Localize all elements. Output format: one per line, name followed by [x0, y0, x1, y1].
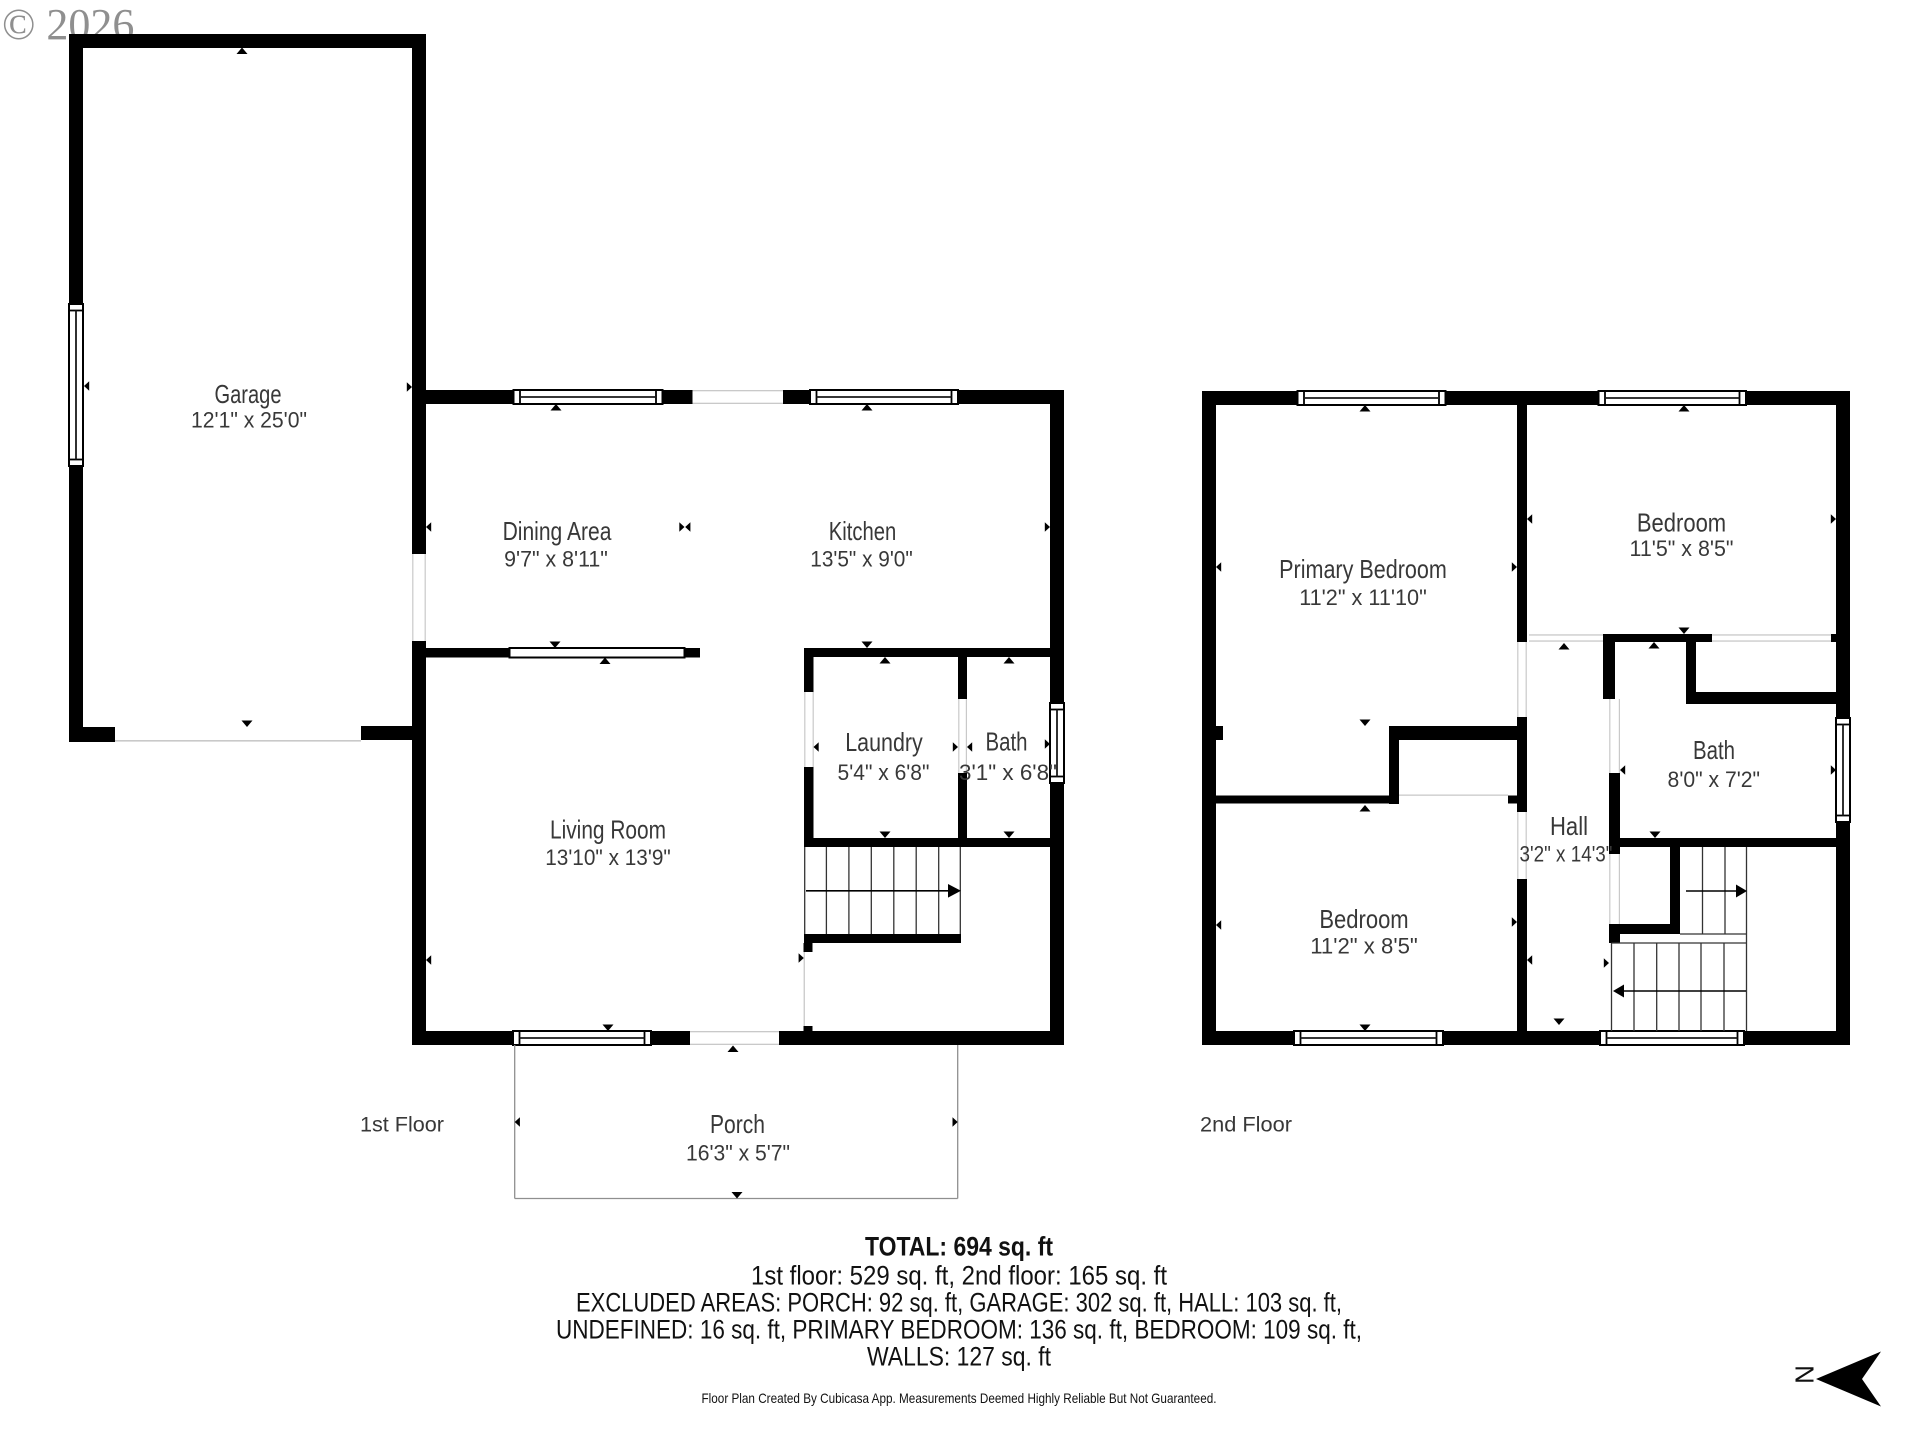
svg-text:Bedroom: Bedroom [1319, 904, 1408, 934]
svg-text:TOTAL: 694 sq. ft: TOTAL: 694 sq. ft [865, 1232, 1053, 1262]
svg-text:Primary Bedroom: Primary Bedroom [1279, 554, 1447, 584]
svg-text:Bath: Bath [1693, 735, 1735, 765]
svg-text:1st Floor: 1st Floor [360, 1114, 444, 1137]
svg-text:Porch: Porch [710, 1109, 765, 1139]
svg-text:UNDEFINED: 16 sq. ft, PRIMARY: UNDEFINED: 16 sq. ft, PRIMARY BEDROOM: 1… [556, 1315, 1362, 1345]
svg-text:1st floor: 529 sq. ft, 2nd flo: 1st floor: 529 sq. ft, 2nd floor: 165 sq… [751, 1261, 1167, 1291]
svg-text:Kitchen: Kitchen [829, 516, 897, 546]
svg-text:11'2" x 11'10": 11'2" x 11'10" [1299, 585, 1427, 610]
svg-text:EXCLUDED AREAS: PORCH: 92 sq.: EXCLUDED AREAS: PORCH: 92 sq. ft, GARAGE… [576, 1288, 1342, 1318]
svg-text:WALLS: 127 sq. ft: WALLS: 127 sq. ft [867, 1342, 1051, 1372]
svg-text:Bedroom: Bedroom [1637, 508, 1726, 538]
svg-text:3'1" x 6'8": 3'1" x 6'8" [959, 760, 1057, 785]
svg-text:Laundry: Laundry [845, 727, 923, 757]
svg-text:Dining Area: Dining Area [503, 516, 612, 546]
svg-text:16'3" x 5'7": 16'3" x 5'7" [686, 1141, 790, 1166]
svg-text:13'10" x 13'9": 13'10" x 13'9" [545, 845, 671, 870]
svg-text:N: N [1790, 1365, 1820, 1384]
svg-text:Garage: Garage [215, 379, 282, 409]
svg-text:Floor Plan Created By Cubicasa: Floor Plan Created By Cubicasa App. Meas… [702, 1390, 1217, 1406]
svg-text:8'0" x 7'2": 8'0" x 7'2" [1668, 767, 1761, 792]
svg-text:12'1" x 25'0": 12'1" x 25'0" [191, 408, 307, 433]
svg-text:11'5" x 8'5": 11'5" x 8'5" [1630, 536, 1734, 561]
svg-text:9'7" x 8'11": 9'7" x 8'11" [504, 546, 608, 571]
svg-text:5'4" x 6'8": 5'4" x 6'8" [838, 760, 930, 785]
svg-text:13'5" x 9'0": 13'5" x 9'0" [810, 546, 913, 571]
svg-text:Hall: Hall [1550, 811, 1588, 841]
svg-text:3'2" x 14'3": 3'2" x 14'3" [1520, 842, 1613, 867]
svg-text:Living Room: Living Room [550, 814, 666, 844]
svg-text:Bath: Bath [986, 727, 1028, 757]
svg-text:2nd Floor: 2nd Floor [1200, 1114, 1292, 1137]
svg-text:11'2" x 8'5": 11'2" x 8'5" [1310, 934, 1418, 959]
